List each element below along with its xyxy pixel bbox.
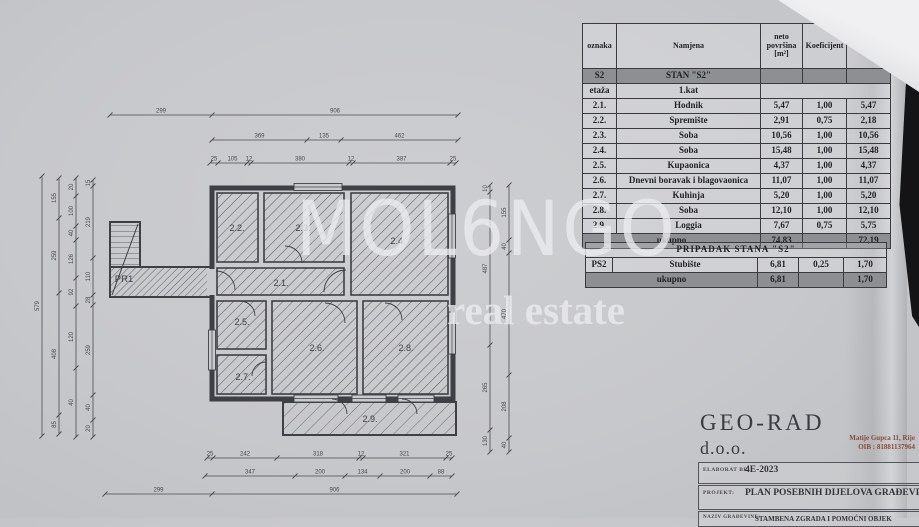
floor-row: etaža 1.kat — [583, 84, 891, 99]
table-row: 2.4.Soba15,481,0015,48 — [583, 144, 891, 159]
table-row: 2.3.Soba10,561,0010,56 — [583, 129, 891, 144]
col-neto: neto površina [m²] — [761, 24, 803, 69]
table-row: 2.2.Spremište2,910,752,18 — [583, 114, 891, 129]
table-row: 2.1.Hodnik5,471,005,47 — [583, 99, 891, 114]
tables-layer: oznaka Namjena neto površina [m²] Koefic… — [0, 0, 919, 518]
table-row: 2.7.Kuhinja5,201,005,20 — [583, 189, 891, 204]
scanned-floor-plan-document: { "watermark": { "line1": "MOL6NGO", "li… — [0, 0, 919, 518]
annex-total-row: ukupno 6,81 1,70 — [586, 273, 887, 288]
col-oznaka: oznaka — [583, 24, 617, 69]
table-row: 2.9.Loggia7,670,755,75 — [583, 219, 891, 234]
area-table: oznaka Namjena neto površina [m²] Koefic… — [582, 23, 891, 249]
annex-title-row: PRIPADAK STANA "S2" — [586, 243, 887, 258]
table-row: PS2 Stubište 6,81 0,25 1,70 — [586, 258, 887, 273]
table-row: 2.8.Soba12,101,0012,10 — [583, 204, 891, 219]
col-namjena: Namjena — [617, 24, 761, 69]
table-row: 2.5.Kupaonica4,371,004,37 — [583, 159, 891, 174]
annex-table: PRIPADAK STANA "S2" PS2 Stubište 6,81 0,… — [585, 242, 887, 288]
section-band: S2 STAN "S2" — [583, 69, 891, 84]
table-row: 2.6.Dnevni boravak i blagovaonica11,071,… — [583, 174, 891, 189]
